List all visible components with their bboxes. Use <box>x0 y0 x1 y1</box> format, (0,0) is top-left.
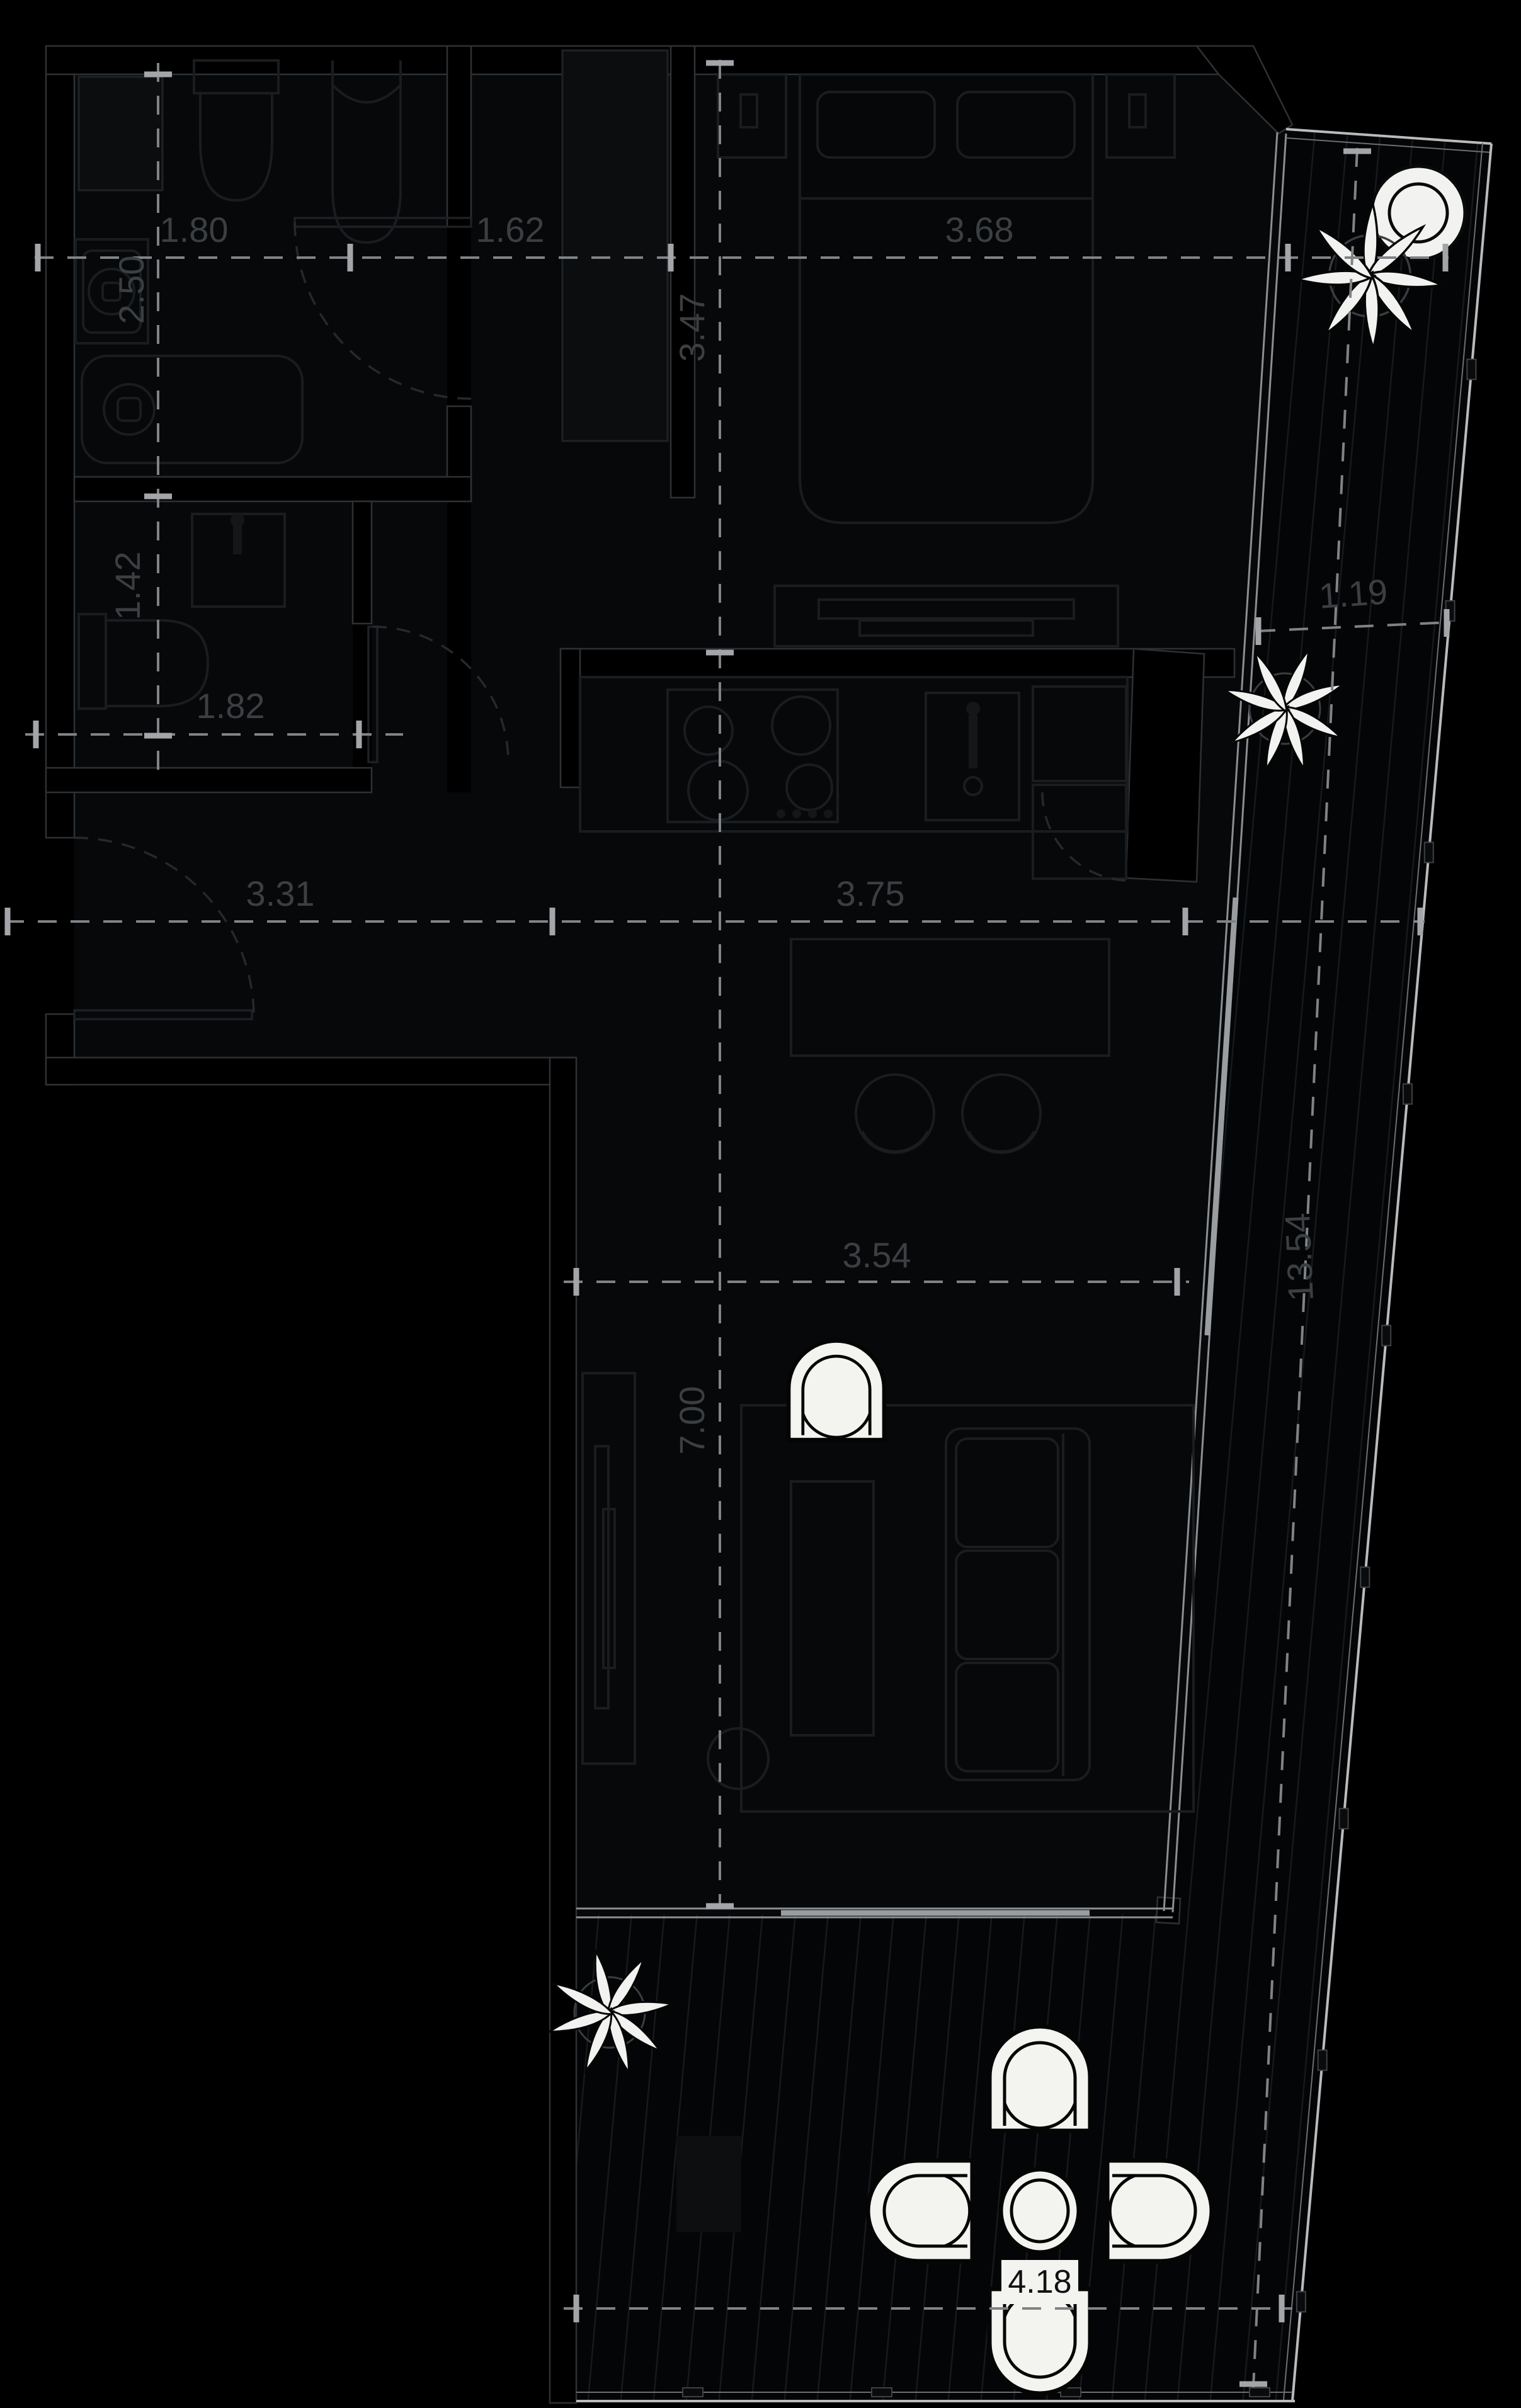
wall-bath-bottom <box>74 477 471 501</box>
terrace-mat <box>676 2136 741 2232</box>
dim-wc-width: 1.82 <box>197 686 265 726</box>
wall-bath-right-upper <box>447 46 471 227</box>
wall-hall-bottom <box>46 1058 573 1085</box>
railing-post <box>1297 2291 1306 2312</box>
railing-post <box>872 2388 892 2397</box>
bed-icon <box>800 74 1093 523</box>
kitchen-faucet <box>969 715 977 768</box>
wardrobe-icon <box>562 50 668 441</box>
dim-wc-depth: 1.42 <box>108 552 147 620</box>
railing-post <box>1467 359 1476 379</box>
wall-wc-right <box>353 501 372 624</box>
wall-kitchen-stub <box>561 649 580 787</box>
railing-post <box>1340 1808 1348 1829</box>
dim-bath-depth: 2.50 <box>111 256 151 324</box>
wall-bedroom-left <box>671 46 695 498</box>
dim-hall-width: 3.31 <box>246 874 315 913</box>
dim-living-depth: 7.00 <box>672 1386 712 1455</box>
outdoor-chair-right <box>1107 2160 1212 2261</box>
outdoor-chair-left <box>868 2160 972 2261</box>
dim-kitchen-width: 3.75 <box>836 874 905 913</box>
floor-plan-drawing: 1.80 1.62 3.68 2.50 1.42 1.82 3.31 3.75 … <box>0 0 1521 2408</box>
railing-post <box>1360 1567 1369 1587</box>
wall-living-terrace-left <box>550 1058 576 2403</box>
outdoor-chair-bottom <box>989 2289 1090 2394</box>
dim-balcony-length: 13.54 <box>1277 1212 1321 1302</box>
wc-sink-faucet-head <box>231 513 244 527</box>
wc-floor <box>74 501 353 768</box>
railing-post <box>1250 2388 1270 2397</box>
kitchen-faucet-head <box>966 702 980 716</box>
hall-alcove-floor <box>372 501 447 792</box>
dim-bedroom-width: 3.68 <box>945 210 1014 249</box>
dim-bedroom-depth: 3.47 <box>672 294 712 362</box>
outdoor-chair-top <box>989 2026 1090 2131</box>
wall-living-window-pier <box>1156 1897 1180 1924</box>
wall-balcony-pier <box>1126 649 1204 882</box>
armchair-icon <box>789 1340 884 1440</box>
bedroom-doorway-floor <box>671 498 695 649</box>
wall-wc-bottom <box>46 768 372 792</box>
corridor-floor <box>74 792 573 1058</box>
shower-shaft <box>79 77 162 190</box>
dim-living-width: 3.54 <box>843 1235 911 1275</box>
dim-hall-top: 1.62 <box>476 210 545 249</box>
dim-balcony-width: 1.19 <box>1318 571 1389 615</box>
floor-plan-page: 1.80 1.62 3.68 2.50 1.42 1.82 3.31 3.75 … <box>0 0 1521 2408</box>
railing-post <box>1425 842 1433 862</box>
railing-post <box>1403 1084 1412 1104</box>
dim-bath-width: 1.80 <box>160 210 229 249</box>
hall-furniture <box>562 50 668 441</box>
dim-terrace-width: 4.18 <box>1008 2264 1071 2300</box>
wall-left-upper <box>46 74 74 838</box>
railing-post <box>1318 2050 1327 2070</box>
railing-post <box>683 2388 703 2397</box>
railing-post <box>1382 1325 1391 1345</box>
